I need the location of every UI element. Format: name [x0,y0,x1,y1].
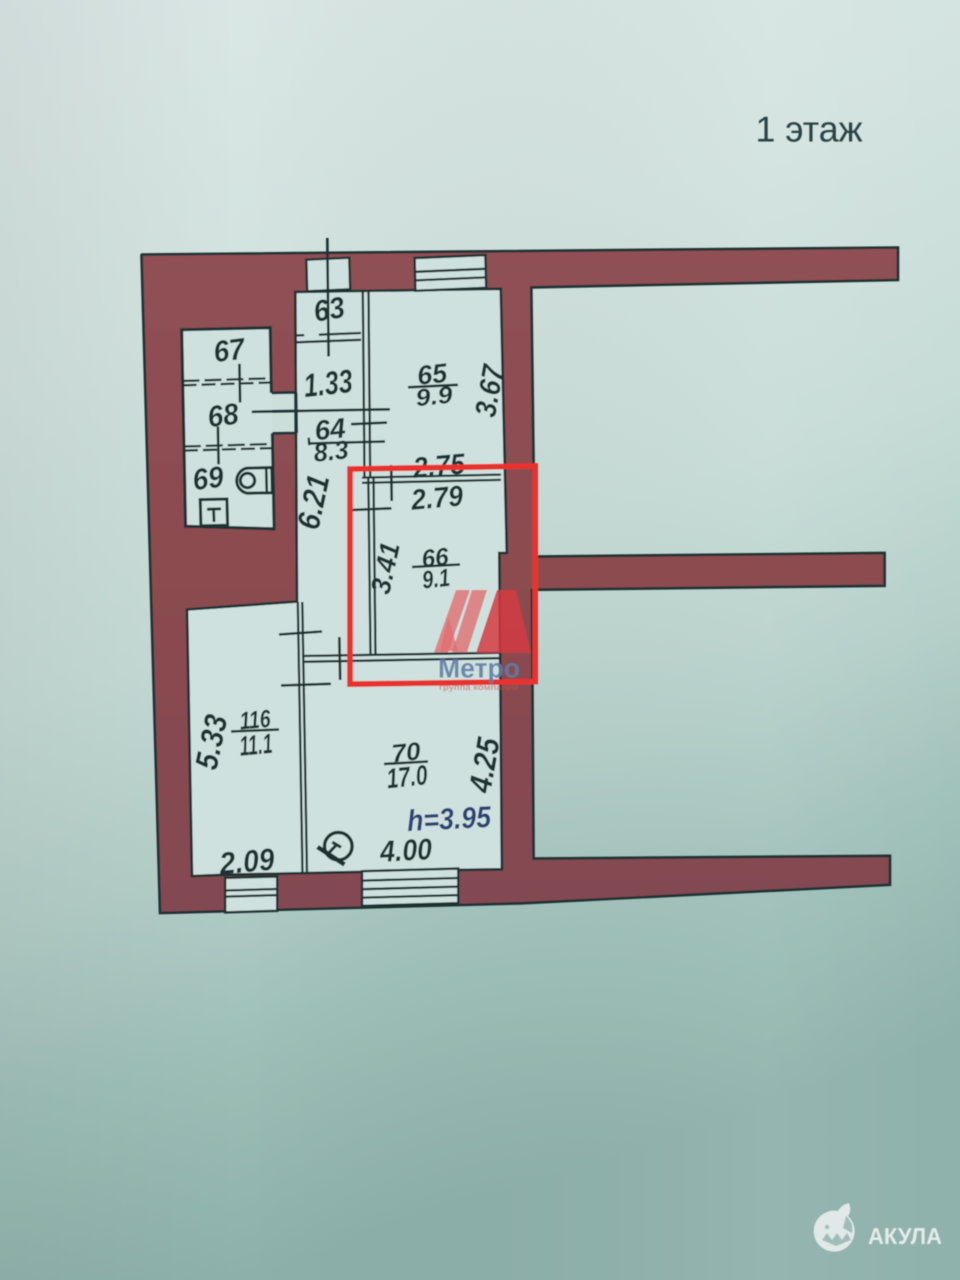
svg-text:68: 68 [206,398,241,435]
svg-text:63: 63 [311,291,348,329]
svg-text:2.79: 2.79 [409,480,465,516]
svg-text:67: 67 [212,333,248,370]
svg-text:Метро: Метро [438,654,520,684]
svg-text:9.1: 9.1 [421,564,452,595]
svg-text:11.1: 11.1 [238,728,274,762]
svg-text:АКУЛА: АКУЛА [868,1223,942,1249]
svg-text:1 этаж: 1 этаж [756,109,863,150]
svg-text:17.0: 17.0 [385,759,429,794]
svg-text:9.9: 9.9 [414,381,454,412]
svg-text:2.09: 2.09 [217,842,276,882]
svg-text:69: 69 [191,461,226,498]
svg-text:4.00: 4.00 [378,833,433,869]
svg-text:h=3.95: h=3.95 [406,801,493,838]
svg-text:группа компаний: группа компаний [439,682,519,692]
svg-text:1.33: 1.33 [302,362,355,404]
svg-text:8.3: 8.3 [312,434,350,468]
